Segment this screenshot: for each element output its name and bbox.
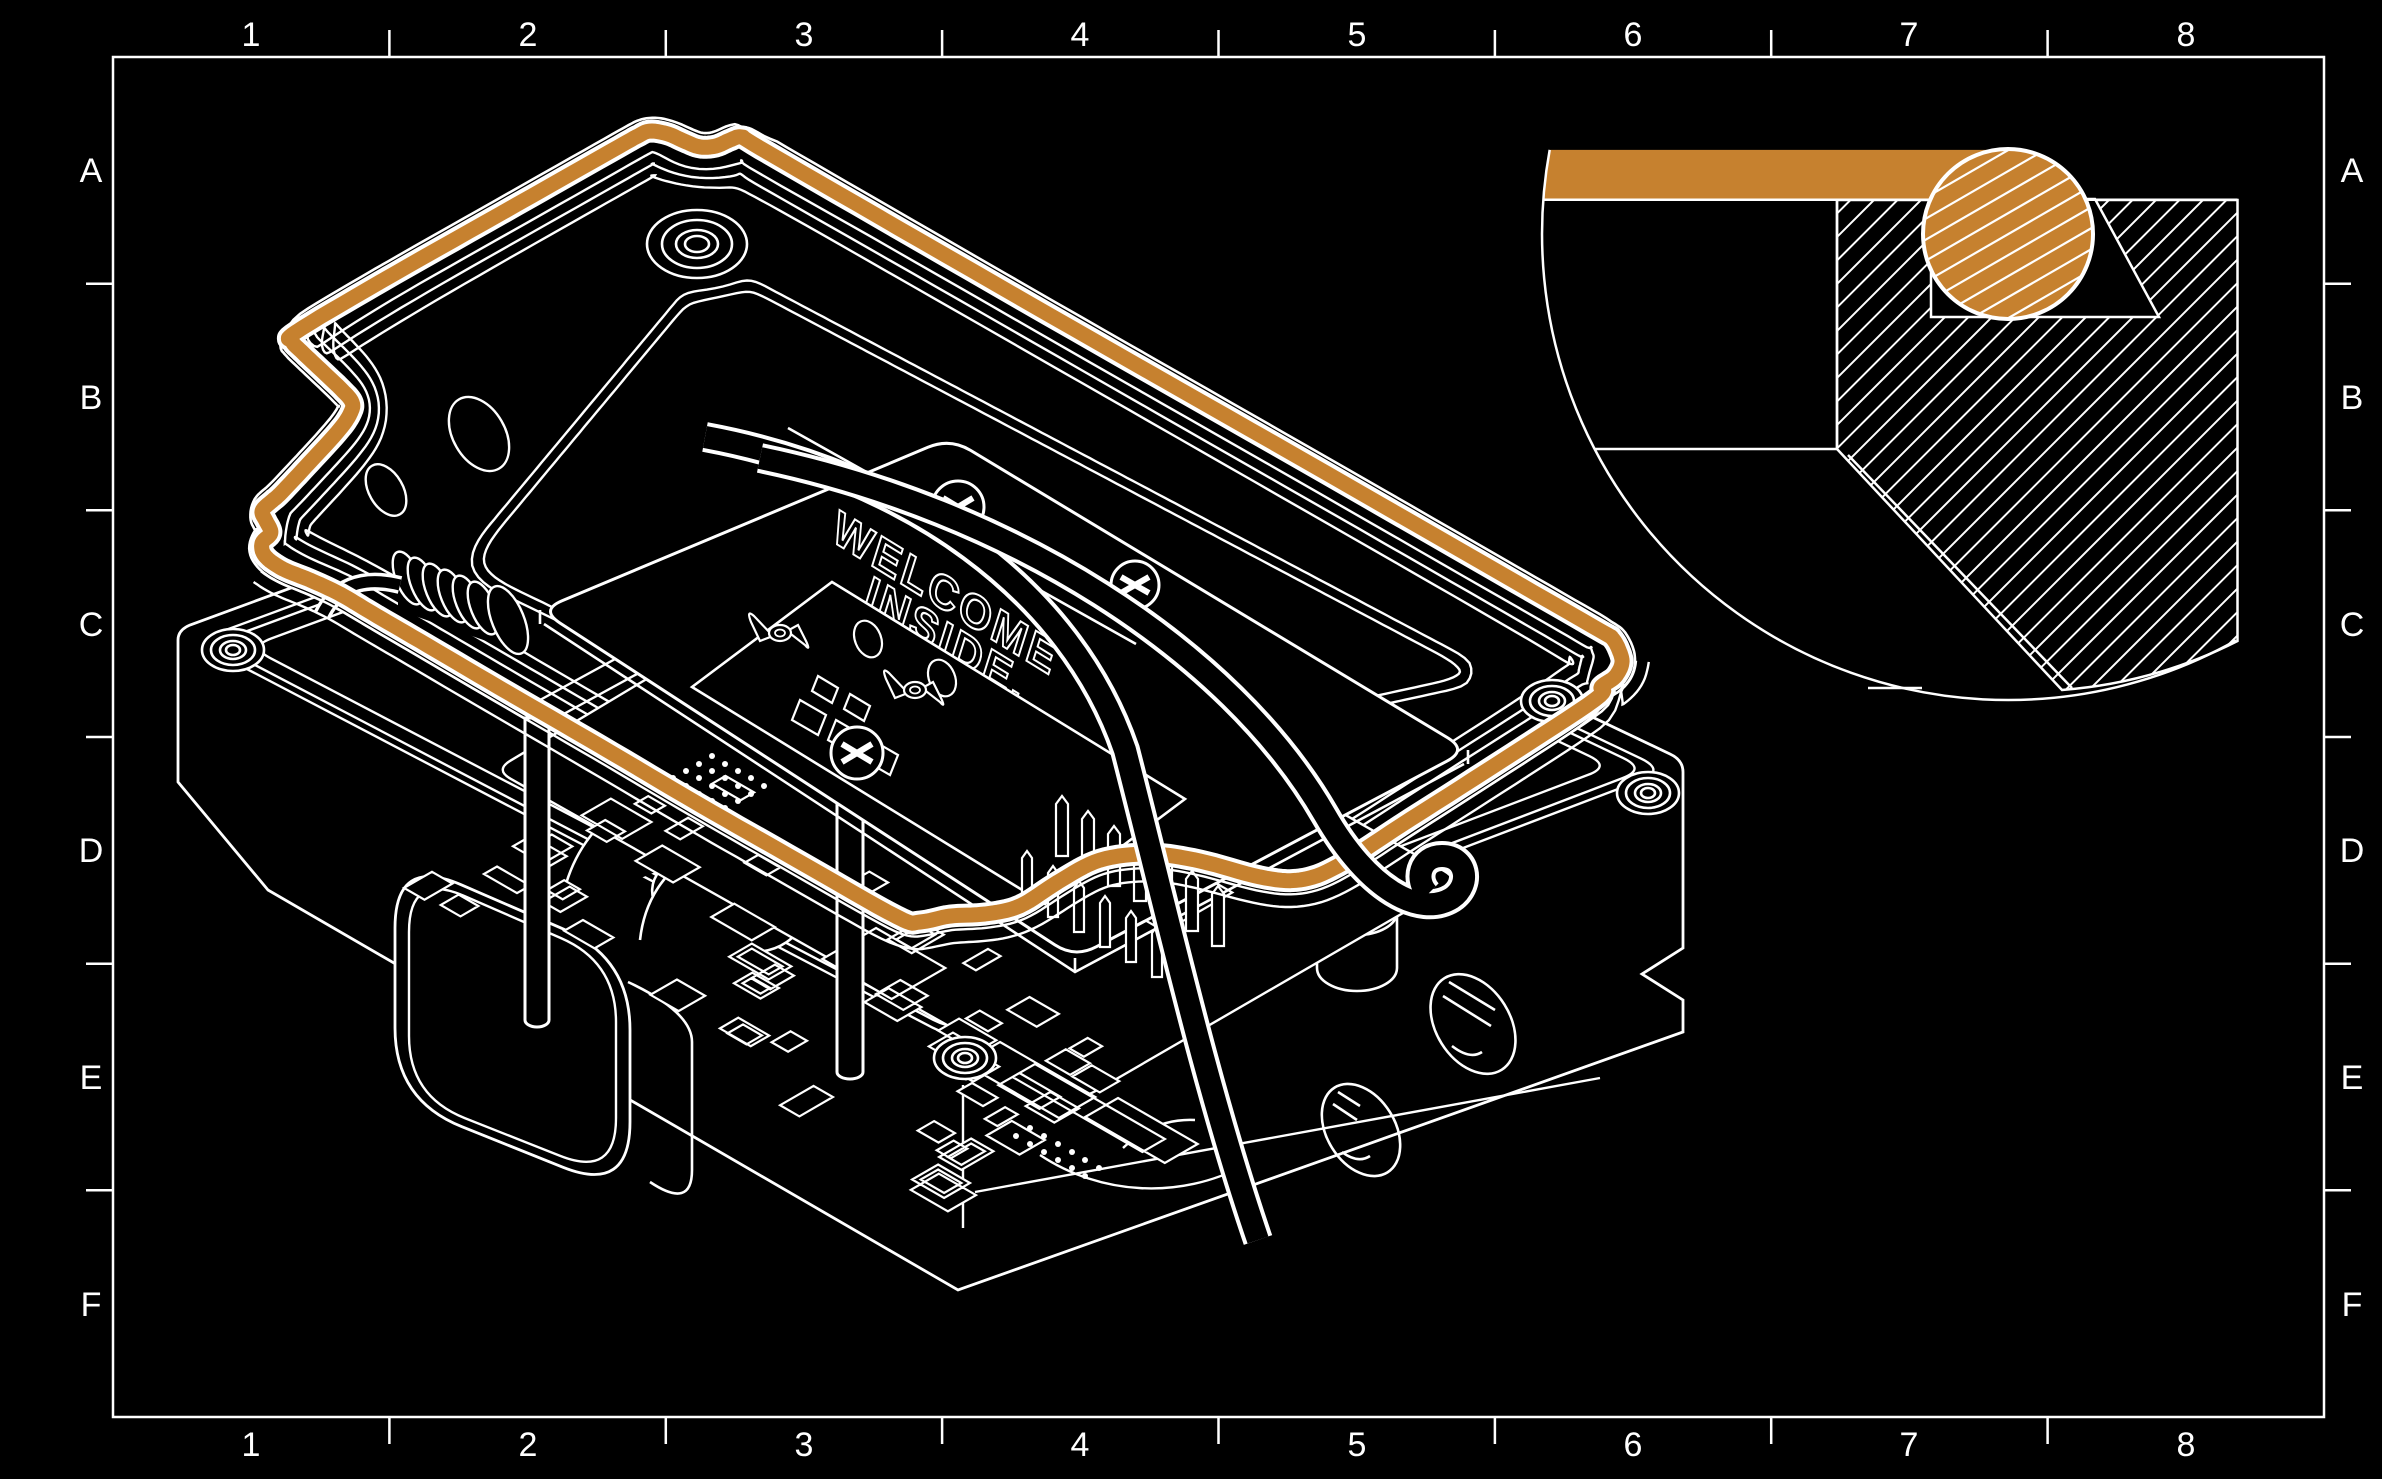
svg-text:7: 7 — [1900, 1426, 1919, 1464]
svg-text:5: 5 — [1348, 1426, 1367, 1464]
svg-text:A: A — [2341, 152, 2364, 190]
svg-text:2: 2 — [519, 16, 538, 54]
svg-text:D: D — [79, 832, 104, 870]
svg-text:D: D — [2340, 832, 2365, 870]
svg-text:A: A — [80, 152, 103, 190]
svg-text:8: 8 — [2177, 16, 2196, 54]
svg-text:7: 7 — [1900, 16, 1919, 54]
svg-text:8: 8 — [2177, 1426, 2196, 1464]
svg-text:5: 5 — [1348, 16, 1367, 54]
svg-text:4: 4 — [1071, 16, 1090, 54]
svg-text:1: 1 — [242, 16, 261, 54]
svg-text:B: B — [80, 379, 103, 417]
svg-text:E: E — [80, 1059, 103, 1097]
svg-text:6: 6 — [1624, 1426, 1643, 1464]
svg-text:1: 1 — [242, 1426, 261, 1464]
svg-text:2: 2 — [519, 1426, 538, 1464]
svg-text:6: 6 — [1624, 16, 1643, 54]
svg-text:B: B — [2341, 379, 2364, 417]
svg-text:F: F — [2342, 1286, 2363, 1324]
svg-text:3: 3 — [795, 1426, 814, 1464]
svg-text:4: 4 — [1071, 1426, 1090, 1464]
svg-text:F: F — [81, 1286, 102, 1324]
svg-text:3: 3 — [795, 16, 814, 54]
svg-text:C: C — [79, 606, 104, 644]
svg-text:C: C — [2340, 606, 2365, 644]
svg-text:E: E — [2341, 1059, 2364, 1097]
